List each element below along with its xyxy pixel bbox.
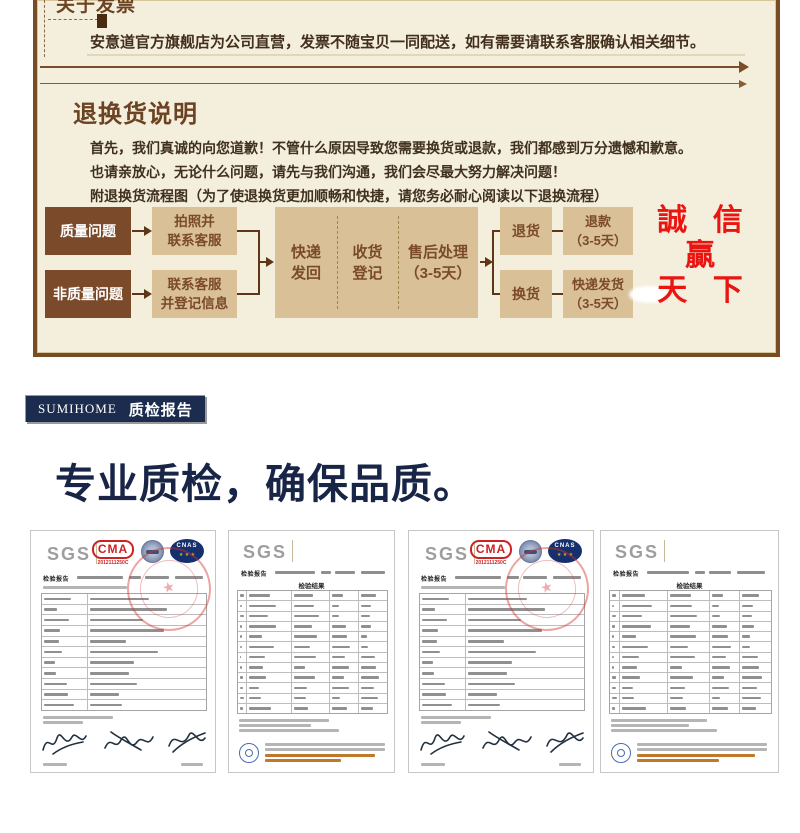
flow-box-photo-contact: 拍照并联系客服: [152, 207, 237, 255]
blurred-text: [239, 724, 311, 727]
blurred-text: [335, 571, 355, 574]
blurred-text: [77, 576, 123, 579]
certificate-card-4: SGS 检验报告 检验结果: [600, 530, 779, 773]
blurred-text: [361, 571, 385, 574]
divider-arrow-top: [40, 66, 740, 68]
sgs-logo: SGS: [47, 544, 91, 565]
dashed-guide-horizontal: [48, 19, 98, 20]
qc-report-badge: SUMIHOME 质检报告: [25, 395, 205, 422]
dashed-guide-vertical: [44, 0, 45, 57]
sgs-logo: SGS: [243, 542, 287, 563]
certificate-card-3: SGS CMA 2012111250C CNAS ★ ★ ★ ★ 检验报告: [408, 530, 594, 773]
blurred-contact-line: [265, 754, 375, 757]
flow-box-contact-register: 联系客服并登记信息: [152, 270, 237, 318]
blurred-text: [321, 571, 331, 574]
blurred-text: [695, 571, 705, 574]
certificate-card-2: SGS 检验报告 检验结果: [228, 530, 395, 773]
integrity-slogan: 誠 信 贏 天 下: [652, 203, 748, 308]
blurred-text: [611, 719, 707, 722]
slogan-line-1: 誠 信: [652, 203, 748, 238]
certificate-card-1: SGS CMA 2012111250C CNAS ★ ★ ★ ★ 检验报告: [30, 530, 216, 773]
result-title: 检验结果: [229, 580, 394, 590]
report-title: 检验报告: [421, 574, 447, 583]
flow-box-non-quality-issue: 非质量问题: [45, 270, 131, 318]
blurred-text: [275, 571, 315, 574]
footer-seal-icon: [239, 743, 259, 763]
blurred-text: [709, 571, 731, 574]
blurred-text: [265, 743, 385, 746]
blurred-text: [611, 724, 689, 727]
result-table: [237, 590, 388, 714]
flow-connector: [492, 230, 500, 232]
qc-badge-label: 质检报告: [129, 399, 193, 420]
blurred-text: [637, 743, 767, 746]
blurred-text: [239, 719, 329, 722]
flow-box-process: 快递发回 收货登记 售后处理（3-5天）: [275, 207, 478, 318]
flow-connector: [552, 293, 563, 295]
returns-paragraph-3: 附退换货流程图（为了使退换货更加顺畅和快捷，请您务必耐心阅读以下退换流程）: [90, 184, 692, 208]
divider-line: [87, 54, 745, 56]
sgs-logo: SGS: [615, 542, 659, 563]
blurred-contact-line: [265, 759, 341, 762]
flow-box-reship: 快递发货（3-5天）: [563, 270, 633, 318]
sgs-logo: SGS: [425, 544, 469, 565]
flow-connector: [492, 293, 500, 295]
result-table: [609, 590, 772, 714]
blurred-text: [181, 763, 203, 766]
blurred-text: [421, 716, 491, 719]
arrow-head-icon: [144, 226, 152, 236]
signatures: [39, 724, 209, 762]
arrow-head-icon: [144, 289, 152, 299]
flow-box-return: 退货: [500, 207, 552, 255]
slogan-line-3: 天 下: [652, 273, 748, 308]
flow-connector: [492, 230, 494, 295]
blurred-text: [421, 763, 445, 766]
blurred-text: [239, 729, 339, 732]
blurred-text: [421, 586, 505, 589]
blurred-text: [647, 571, 689, 574]
invoice-note: 安意道官方旗舰店为公司直营，发票不随宝贝一同配送，如有需要请联系客服确认相关细节…: [90, 31, 705, 52]
flow-step-receive-register: 收货登记: [337, 207, 398, 318]
brand-name: SUMIHOME: [38, 401, 117, 417]
blurred-text: [559, 763, 581, 766]
returns-paragraphs: 首先，我们真诚的向您道歉！不管什么原因导致您需要换货或退款，我们都感到万分遗憾和…: [90, 136, 692, 208]
product-detail-page: 关于发票 安意道官方旗舰店为公司直营，发票不随宝贝一同配送，如有需要请联系客服确…: [0, 0, 800, 833]
flow-box-refund: 退款（3-5天）: [563, 207, 633, 255]
returns-section-title: 退换货说明: [73, 94, 198, 129]
arrow-head-icon: [739, 80, 747, 88]
notice-box: 关于发票 安意道官方旗舰店为公司直营，发票不随宝贝一同配送，如有需要请联系客服确…: [33, 0, 780, 357]
blurred-text: [265, 748, 385, 751]
qc-heading: 专业质检，确保品质。: [55, 450, 475, 510]
returns-paragraph-1: 首先，我们真诚的向您道歉！不管什么原因导致您需要换货或退款，我们都感到万分遗憾和…: [90, 136, 692, 160]
blurred-text: [611, 729, 717, 732]
flow-box-quality-issue: 质量问题: [45, 207, 131, 255]
arrow-head-icon: [266, 257, 274, 267]
blurred-contact-line: [637, 759, 719, 762]
report-title: 检验报告: [241, 569, 267, 578]
returns-paragraph-2: 也请亲放心，无论什么问题，请先与我们沟通，我们会尽最大努力解决问题！: [90, 160, 692, 184]
signatures: [417, 724, 587, 762]
blurred-text: [43, 586, 127, 589]
report-title: 检验报告: [43, 574, 69, 583]
blurred-text: [43, 763, 67, 766]
invoice-section-title: 关于发票: [56, 0, 136, 17]
flow-step-aftersale: 售后处理（3-5天）: [398, 207, 478, 318]
flow-connector: [237, 230, 258, 232]
flow-step-ship-back: 快递发回: [275, 207, 337, 318]
cma-logo: CMA 2012111250C: [91, 540, 135, 566]
blurred-text: [455, 576, 501, 579]
footer-seal-icon: [611, 743, 631, 763]
flow-box-exchange: 换货: [500, 270, 552, 318]
cma-logo: CMA 2012111250C: [469, 540, 513, 566]
guide-marker: [97, 14, 107, 28]
report-title: 检验报告: [613, 569, 639, 578]
blurred-text: [637, 748, 767, 751]
blurred-contact-line: [637, 754, 755, 757]
arrow-head-icon: [739, 61, 749, 73]
slogan-line-2: 贏: [652, 238, 748, 273]
blurred-text: [43, 716, 113, 719]
divider-arrow-bottom: [40, 83, 740, 84]
blurred-text: [737, 571, 765, 574]
flow-connector: [552, 230, 563, 232]
result-title: 检验结果: [601, 580, 778, 590]
flow-connector: [237, 293, 258, 295]
